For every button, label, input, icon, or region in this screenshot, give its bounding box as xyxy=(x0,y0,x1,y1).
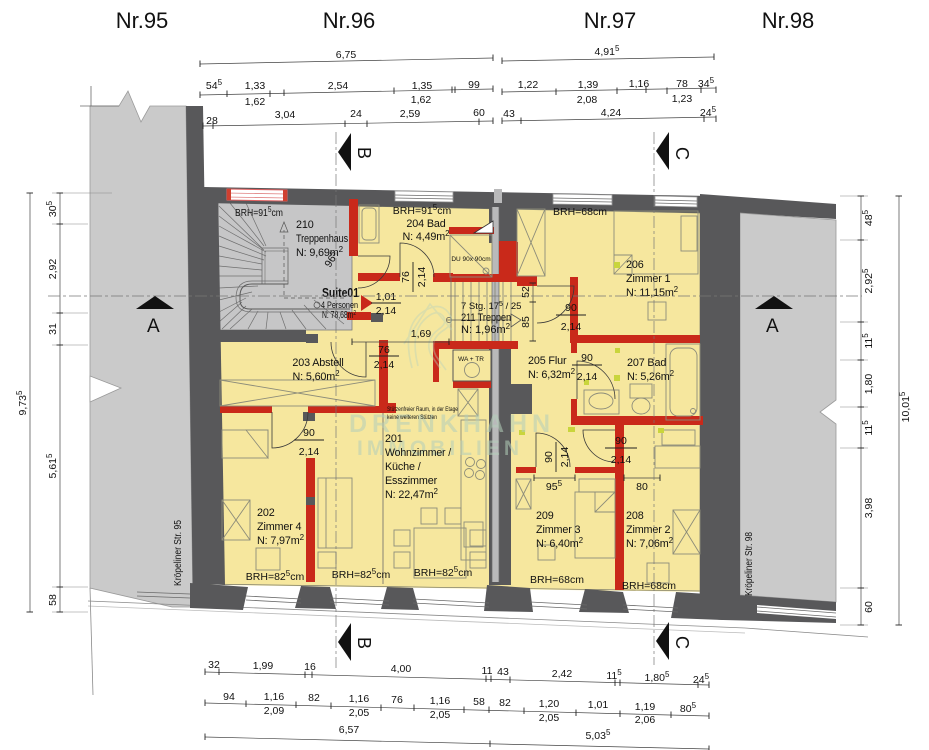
svg-text:1,22: 1,22 xyxy=(518,79,539,91)
svg-text:2,09: 2,09 xyxy=(264,705,285,717)
svg-text:BRH=915cm: BRH=915cm xyxy=(235,205,283,219)
svg-text:2,14: 2,14 xyxy=(374,359,395,371)
svg-text:32: 32 xyxy=(208,659,220,671)
svg-text:Zimmer 4: Zimmer 4 xyxy=(257,521,302,533)
svg-text:208: 208 xyxy=(626,510,644,522)
svg-text:C: C xyxy=(672,636,692,649)
svg-text:2,14: 2,14 xyxy=(376,305,397,317)
svg-text:1,80: 1,80 xyxy=(863,374,875,395)
svg-text:Zimmer 2: Zimmer 2 xyxy=(626,524,671,536)
svg-text:4,00: 4,00 xyxy=(391,663,412,675)
svg-text:1,16: 1,16 xyxy=(349,693,370,705)
svg-text:11: 11 xyxy=(482,665,493,677)
svg-text:2,42: 2,42 xyxy=(552,668,573,680)
svg-text:76: 76 xyxy=(400,271,412,283)
svg-text:2,92: 2,92 xyxy=(47,259,59,280)
svg-text:24: 24 xyxy=(350,108,362,120)
svg-text:3,98: 3,98 xyxy=(863,498,875,519)
svg-text:43: 43 xyxy=(497,666,509,678)
svg-text:90: 90 xyxy=(581,352,593,364)
svg-text:BRH=825cm: BRH=825cm xyxy=(414,565,473,579)
svg-text:Stützenfreier Raum, in der Eta: Stützenfreier Raum, in der Etage xyxy=(387,406,458,413)
svg-text:90: 90 xyxy=(543,451,555,463)
svg-text:201: 201 xyxy=(385,433,403,445)
svg-text:BRH=68cm: BRH=68cm xyxy=(553,206,607,218)
svg-text:Kröpeliner Str. 98: Kröpeliner Str. 98 xyxy=(744,532,755,596)
svg-text:4,24: 4,24 xyxy=(601,107,622,119)
svg-text:N: 6,40m2: N: 6,40m2 xyxy=(536,536,584,550)
svg-text:94: 94 xyxy=(223,691,235,703)
svg-text:Wohnzimmer /: Wohnzimmer / xyxy=(385,447,451,459)
svg-text:BRH=68cm: BRH=68cm xyxy=(622,580,676,592)
svg-text:2,14: 2,14 xyxy=(559,447,571,468)
svg-text:DRENKHAHN: DRENKHAHN xyxy=(349,410,555,438)
svg-text:N: 11,15m2: N: 11,15m2 xyxy=(626,285,679,299)
svg-text:Esszimmer: Esszimmer xyxy=(385,475,438,487)
svg-text:1,62: 1,62 xyxy=(411,94,432,106)
svg-text:N: 9,69m2: N: 9,69m2 xyxy=(296,245,344,259)
svg-text:Suite01: Suite01 xyxy=(322,286,359,300)
svg-text:1,62: 1,62 xyxy=(245,96,266,108)
svg-text:60: 60 xyxy=(473,107,485,119)
svg-text:205 Flur: 205 Flur xyxy=(528,355,567,367)
svg-text:58: 58 xyxy=(473,696,485,708)
svg-text:DU 90x 90cm: DU 90x 90cm xyxy=(451,256,490,263)
svg-text:1,33: 1,33 xyxy=(245,80,266,92)
svg-text:keine weiteren Stützen: keine weiteren Stützen xyxy=(387,414,437,421)
svg-text:207 Bad: 207 Bad xyxy=(627,357,666,369)
svg-text:Kröpeliner Str. 95: Kröpeliner Str. 95 xyxy=(173,520,184,586)
svg-text:210: 210 xyxy=(296,219,314,231)
svg-text:76: 76 xyxy=(391,694,403,706)
svg-text:BRH=68cm: BRH=68cm xyxy=(530,574,584,586)
svg-text:85: 85 xyxy=(520,316,532,328)
svg-text:BRH=825cm: BRH=825cm xyxy=(332,567,391,581)
svg-text:N: 1,96m2: N: 1,96m2 xyxy=(461,322,511,336)
svg-text:2,06: 2,06 xyxy=(635,714,656,726)
svg-text:Zimmer 1: Zimmer 1 xyxy=(626,273,671,285)
svg-text:2,14: 2,14 xyxy=(561,321,582,333)
svg-text:1,99: 1,99 xyxy=(253,660,274,672)
svg-text:B: B xyxy=(354,637,374,649)
svg-text:6,75: 6,75 xyxy=(336,49,357,61)
svg-text:1,01: 1,01 xyxy=(376,291,397,303)
svg-text:90: 90 xyxy=(615,435,627,447)
svg-text:7 Stg. 175 / 25: 7 Stg. 175 / 25 xyxy=(461,301,521,312)
svg-text:90: 90 xyxy=(565,302,577,314)
svg-text:31: 31 xyxy=(47,323,59,335)
svg-text:2,14: 2,14 xyxy=(416,267,428,288)
svg-text:2,54: 2,54 xyxy=(328,80,349,92)
svg-text:82: 82 xyxy=(499,697,511,709)
svg-text:90: 90 xyxy=(303,427,315,439)
svg-text:1,01: 1,01 xyxy=(588,699,609,711)
svg-text:76: 76 xyxy=(378,344,390,356)
svg-text:16: 16 xyxy=(304,661,316,673)
svg-text:58: 58 xyxy=(47,594,59,606)
svg-text:2,05: 2,05 xyxy=(430,709,451,721)
svg-text:N: 7,06m2: N: 7,06m2 xyxy=(626,536,674,550)
svg-text:Nr.95: Nr.95 xyxy=(116,8,169,33)
svg-text:BRH=825cm: BRH=825cm xyxy=(246,569,305,583)
svg-text:209: 209 xyxy=(536,510,554,522)
svg-text:B: B xyxy=(354,147,374,159)
svg-text:2,05: 2,05 xyxy=(349,707,370,719)
svg-text:N: 5,60m2: N: 5,60m2 xyxy=(293,369,341,383)
svg-text:Nr.96: Nr.96 xyxy=(323,8,376,33)
svg-text:1,69: 1,69 xyxy=(411,328,432,340)
svg-text:2,14: 2,14 xyxy=(577,371,598,383)
svg-text:43: 43 xyxy=(503,108,515,120)
svg-text:80: 80 xyxy=(636,481,648,493)
svg-text:28: 28 xyxy=(206,115,218,127)
svg-text:2,14: 2,14 xyxy=(611,454,632,466)
svg-text:N: 22,47m2: N: 22,47m2 xyxy=(385,487,438,501)
svg-text:BRH=915cm: BRH=915cm xyxy=(393,203,452,217)
svg-text:Treppenhaus: Treppenhaus xyxy=(296,233,349,245)
svg-text:WA + TR: WA + TR xyxy=(458,356,484,363)
svg-text:2,14: 2,14 xyxy=(299,446,320,458)
svg-text:Zimmer 3: Zimmer 3 xyxy=(536,524,581,536)
svg-text:211 Treppen: 211 Treppen xyxy=(461,312,511,324)
svg-text:A: A xyxy=(766,316,779,337)
svg-text:6,57: 6,57 xyxy=(339,724,360,736)
svg-text:206: 206 xyxy=(626,259,644,271)
svg-text:N: 7,97m2: N: 7,97m2 xyxy=(257,533,305,547)
svg-text:Küche /: Küche / xyxy=(385,461,421,473)
svg-text:1,16: 1,16 xyxy=(264,691,285,703)
svg-text:N: 5,26m2: N: 5,26m2 xyxy=(627,369,675,383)
svg-text:N: 6,32m2: N: 6,32m2 xyxy=(528,367,576,381)
svg-text:2,59: 2,59 xyxy=(400,108,421,120)
svg-text:78: 78 xyxy=(676,78,688,90)
svg-text:1,39: 1,39 xyxy=(578,79,599,91)
svg-text:1,35: 1,35 xyxy=(412,80,433,92)
svg-text:Nr.97: Nr.97 xyxy=(584,8,637,33)
svg-text:1,19: 1,19 xyxy=(635,701,656,713)
svg-text:3,04: 3,04 xyxy=(275,109,296,121)
svg-text:Nr.98: Nr.98 xyxy=(762,8,815,33)
svg-text:N: 78,68m2: N: 78,68m2 xyxy=(322,310,356,321)
svg-text:60: 60 xyxy=(863,601,875,613)
svg-text:1,23: 1,23 xyxy=(672,93,693,105)
svg-text:99: 99 xyxy=(468,79,480,91)
svg-text:C: C xyxy=(672,147,692,160)
svg-text:2,08: 2,08 xyxy=(577,94,598,106)
svg-text:N: 4,49m2: N: 4,49m2 xyxy=(403,229,451,243)
svg-text:204 Bad: 204 Bad xyxy=(406,218,445,230)
svg-text:A: A xyxy=(147,316,160,337)
svg-text:202: 202 xyxy=(257,507,275,519)
svg-text:1,16: 1,16 xyxy=(430,695,451,707)
svg-text:1,20: 1,20 xyxy=(539,698,560,710)
svg-text:4 Personen: 4 Personen xyxy=(321,300,358,310)
svg-text:2,05: 2,05 xyxy=(539,712,560,724)
svg-text:82: 82 xyxy=(308,692,320,704)
